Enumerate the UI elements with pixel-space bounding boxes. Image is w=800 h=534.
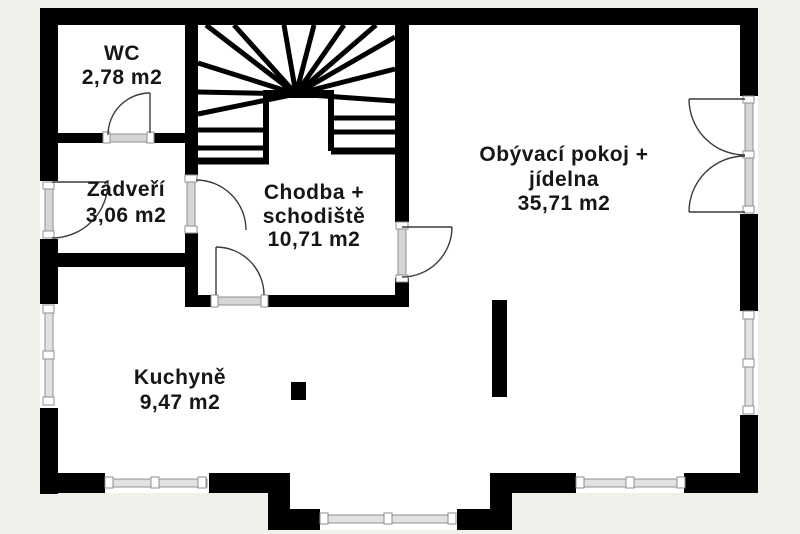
window-living-right <box>743 311 754 414</box>
floor-bay <box>290 474 490 510</box>
door-threshold <box>45 184 53 236</box>
wall-outer-right <box>740 8 758 493</box>
floor-plan-page: WC 2,78 m2 Zádveří 3,06 m2 Chodba + scho… <box>0 0 800 534</box>
room-label-obyvaci-area: 35,71 m2 <box>518 192 611 215</box>
wall-bay-step-left <box>268 473 290 530</box>
stair-well-right-edge <box>328 90 334 151</box>
wall-wc-zadveri-left <box>58 133 104 143</box>
door-jamb <box>43 231 54 238</box>
wall-wc-zadveri-right <box>152 133 185 143</box>
door-jamb <box>43 182 54 189</box>
window-mullion <box>320 513 328 524</box>
window-bay-bottom <box>320 513 456 524</box>
door-jamb <box>185 226 197 233</box>
window-mullion <box>448 513 456 524</box>
window-mullion <box>576 477 584 488</box>
door-jamb <box>211 295 218 307</box>
room-label-chodba-line1: Chodba + <box>264 181 364 204</box>
wall-chodba-bottom-left <box>185 295 211 307</box>
window-mullion <box>105 477 113 488</box>
room-label-obyvaci-line1: Obývací pokoj + <box>479 143 648 166</box>
room-label-chodba-line2: schodiště <box>263 205 366 228</box>
window-mullion <box>151 477 159 488</box>
door-threshold <box>187 177 195 231</box>
room-label-obyvaci-line2: jídelna <box>528 168 599 191</box>
window-mullion <box>626 477 634 488</box>
room-label-kuchyne-name: Kuchyně <box>134 366 226 389</box>
window-mullion <box>198 477 206 488</box>
wall-outer-left <box>40 8 58 494</box>
window-mullion <box>43 305 54 313</box>
door-threshold <box>398 224 406 278</box>
window-living-bottom <box>576 477 685 488</box>
window-mullion <box>743 311 754 319</box>
door-jamb <box>396 222 408 229</box>
floor-plan-svg: WC 2,78 m2 Zádveří 3,06 m2 Chodba + scho… <box>0 0 800 534</box>
door-jamb <box>147 132 154 143</box>
wall-center-upper <box>185 25 198 175</box>
window-mullion <box>743 406 754 414</box>
room-label-wc-area: 2,78 m2 <box>82 66 163 89</box>
wall-chodba-living-upper <box>395 25 409 222</box>
window-kitchen-left <box>43 305 54 405</box>
window-mullion <box>677 477 685 488</box>
window-mullion <box>43 397 54 405</box>
door-jamb <box>396 275 408 282</box>
door-jamb <box>261 295 268 307</box>
door-jamb <box>103 132 110 143</box>
door-threshold <box>106 134 148 142</box>
wall-outer-top <box>40 8 758 25</box>
room-label-zadveri-name: Zádveří <box>87 178 166 201</box>
window-mullion <box>743 359 754 367</box>
wall-zadveri-kitchen <box>58 253 185 267</box>
room-label-chodba-area: 10,71 m2 <box>268 228 361 251</box>
column <box>291 382 306 400</box>
door-jamb <box>185 175 197 182</box>
room-label-kuchyne-area: 9,47 m2 <box>140 391 221 414</box>
door-threshold <box>213 297 266 305</box>
wall-chodba-bottom-right <box>268 295 409 307</box>
wall-stub-kitchen-living <box>492 300 507 397</box>
wall-bay-step-right <box>490 473 512 530</box>
window-mullion <box>43 351 54 359</box>
room-label-zadveri-area: 3,06 m2 <box>86 204 167 227</box>
window-kitchen-bottom <box>105 477 207 488</box>
window-mullion <box>384 513 392 524</box>
room-label-wc-name: WC <box>104 42 140 65</box>
